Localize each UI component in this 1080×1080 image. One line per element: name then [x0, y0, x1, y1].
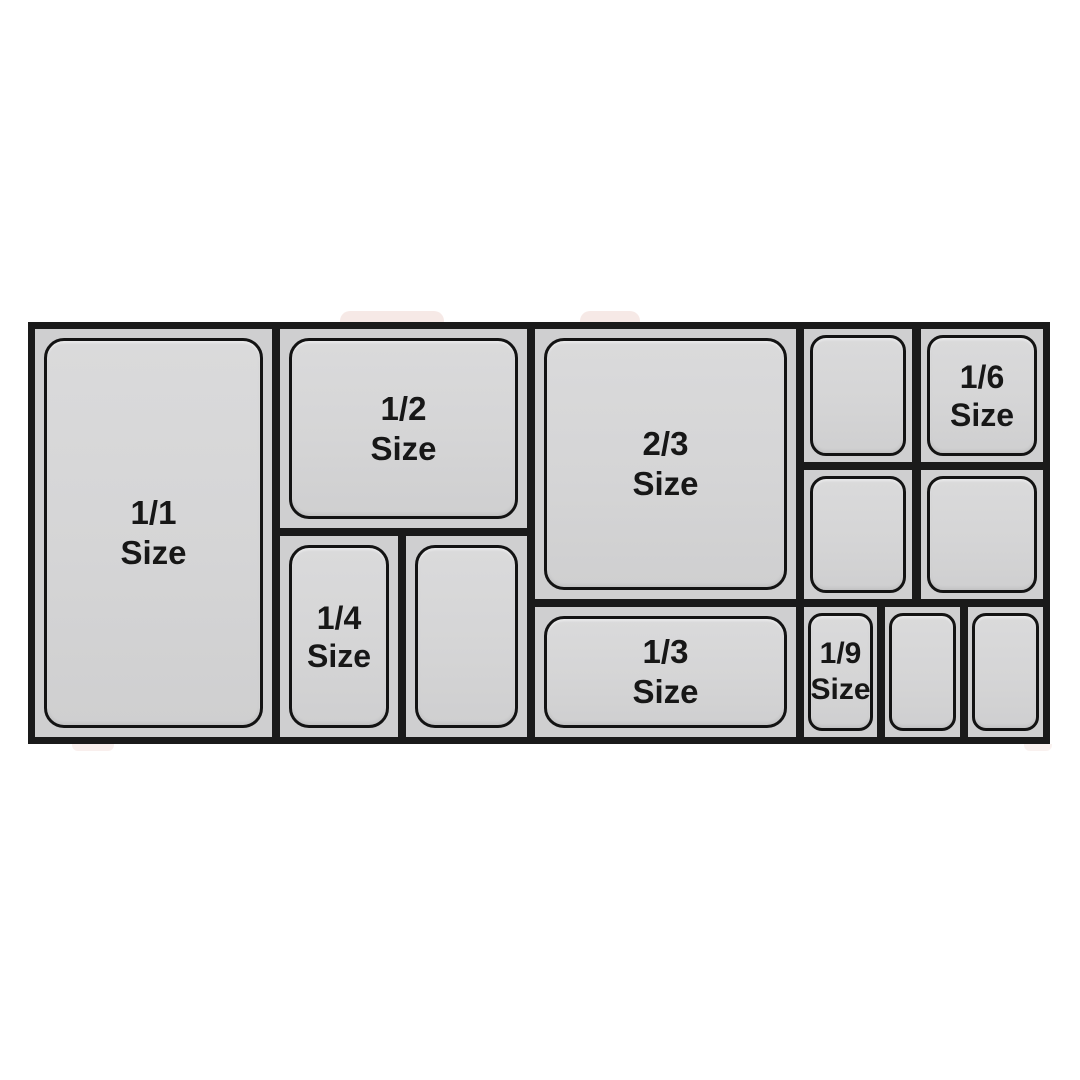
label-line: 1/2 [370, 389, 436, 429]
pan-1-3: 1/3 Size [544, 616, 787, 728]
pan-1-2: 1/2 Size [289, 338, 518, 519]
label-line: 1/3 [632, 632, 698, 672]
label-line: 2/3 [632, 424, 698, 464]
pan-1-1-label: 1/1 Size [120, 493, 186, 573]
pan-1-6-top-left [810, 335, 906, 456]
cell-1-6-labeled: 1/6 Size [921, 329, 1043, 462]
pan-1-1: 1/1 Size [44, 338, 263, 728]
cell-1-3: 1/3 Size [535, 607, 796, 737]
label-line: Size [307, 637, 371, 675]
pan-1-9-right [972, 613, 1039, 731]
pan-grid-tray: 1/1 Size 1/2 Size 1/4 Size [28, 322, 1050, 744]
label-line: Size [632, 672, 698, 712]
cell-1-4-labeled: 1/4 Size [280, 536, 398, 737]
pan-1-9-labeled: 1/9 Size [808, 613, 873, 731]
cell-1-2: 1/2 Size [280, 329, 527, 528]
pan-2-3: 2/3 Size [544, 338, 787, 590]
pan-1-4-labeled: 1/4 Size [289, 545, 389, 728]
label-line: 1/9 [810, 636, 870, 672]
label-line: 1/1 [120, 493, 186, 533]
pan-1-6-labeled: 1/6 Size [927, 335, 1037, 456]
pan-1-3-label: 1/3 Size [632, 632, 698, 712]
photo-artifact-bottom-left [72, 744, 114, 751]
label-line: Size [120, 533, 186, 573]
cell-2-3: 2/3 Size [535, 329, 796, 599]
cell-1-1: 1/1 Size [35, 329, 272, 737]
pan-1-6-mid-right [927, 476, 1037, 593]
pan-2-3-label: 2/3 Size [632, 424, 698, 504]
pan-1-9-label: 1/9 Size [810, 636, 870, 708]
pan-size-diagram-canvas: 1/1 Size 1/2 Size 1/4 Size [0, 0, 1080, 1080]
pan-1-2-label: 1/2 Size [370, 389, 436, 469]
photo-artifact-bottom-right [1024, 744, 1052, 751]
cell-1-9-right [968, 607, 1043, 737]
label-line: Size [950, 396, 1014, 434]
cell-1-6-top-left [804, 329, 912, 462]
cell-1-4-unlabeled [406, 536, 527, 737]
cell-1-6-mid-left [804, 470, 912, 599]
label-line: Size [810, 672, 870, 708]
pan-1-4-label: 1/4 Size [307, 599, 371, 675]
cell-1-9-middle [885, 607, 960, 737]
cell-1-9-labeled: 1/9 Size [804, 607, 877, 737]
label-line: 1/4 [307, 599, 371, 637]
label-line: Size [632, 464, 698, 504]
label-line: 1/6 [950, 358, 1014, 396]
pan-1-4-unlabeled [415, 545, 518, 728]
pan-1-6-label: 1/6 Size [950, 358, 1014, 434]
label-line: Size [370, 429, 436, 469]
pan-1-6-mid-left [810, 476, 906, 593]
cell-1-6-mid-right [921, 470, 1043, 599]
pan-1-9-middle [889, 613, 956, 731]
